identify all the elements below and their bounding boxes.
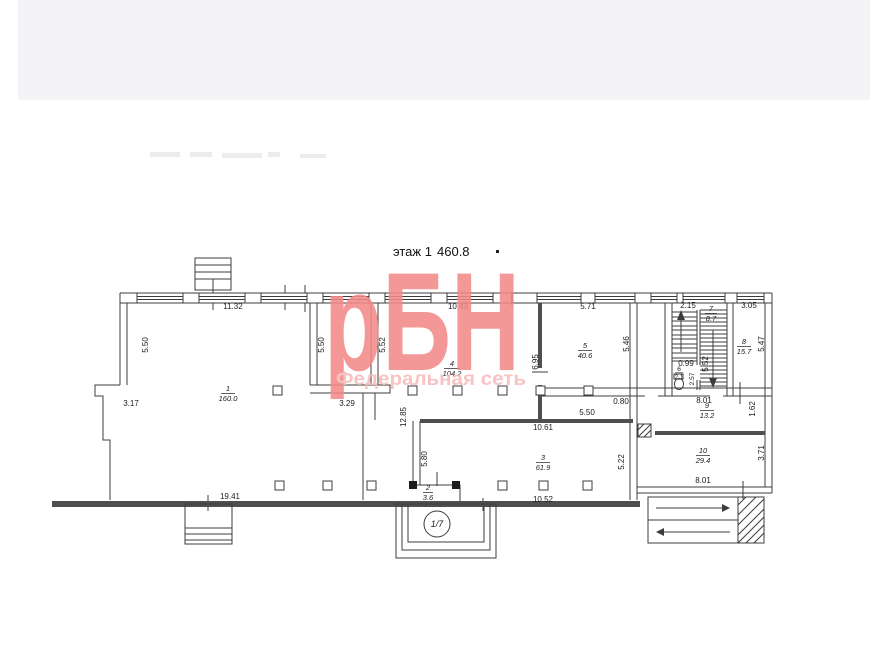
svg-text:29.4: 29.4: [695, 456, 711, 465]
svg-text:1: 1: [226, 384, 230, 393]
floor-plan-page: этаж 1 460.8: [0, 0, 870, 652]
dim-room9-right: 1.62: [748, 401, 757, 417]
top-gray-band: [18, 0, 870, 100]
svg-text:2: 2: [425, 483, 431, 492]
dim-bottom-left: 19.41: [220, 492, 241, 501]
svg-text:3.6: 3.6: [423, 493, 434, 502]
dim-stair-right: 5.52: [701, 356, 710, 372]
dim-room4-right: 6.95: [531, 354, 540, 370]
dim-stair-top: 2.15: [680, 301, 696, 310]
dim-room5-right: 5.46: [622, 336, 631, 352]
dim-corr-width: 5.50: [579, 408, 595, 417]
dim-room8-right: 5.47: [757, 336, 766, 352]
dim-room6-height: 2.57: [689, 372, 696, 385]
svg-text:2.1: 2.1: [674, 374, 683, 381]
floor-plan-svg: этаж 1 460.8: [0, 0, 870, 652]
svg-text:15.7: 15.7: [737, 347, 752, 356]
dim-top-right: 5.71: [580, 302, 596, 311]
dim-room3-bottom: 10.52: [533, 495, 554, 504]
dim-step-left: 3.17: [123, 399, 139, 408]
svg-text:10: 10: [699, 446, 708, 455]
watermark-subtitle: Федеральная сеть: [336, 369, 526, 390]
svg-text:160.0: 160.0: [219, 394, 239, 403]
dim-room3-left: 5.80: [420, 451, 429, 467]
dim-step-mid: 3.29: [339, 399, 355, 408]
dim-corridor: 12.85: [399, 406, 408, 427]
dim-room8-top: 3.05: [741, 301, 757, 310]
svg-text:6: 6: [677, 366, 681, 373]
svg-text:61.9: 61.9: [536, 463, 551, 472]
dim-room10-bottom: 8.01: [695, 476, 711, 485]
dim-room10-right: 3.71: [757, 445, 766, 461]
watermark: рБН Федеральная сеть: [324, 243, 526, 400]
dim-room3-top: 10.61: [533, 423, 554, 432]
svg-text:8.7: 8.7: [706, 314, 717, 323]
dim-corr-small: 0.80: [613, 397, 629, 406]
dim-room3-right: 5.22: [617, 454, 626, 470]
entrance-number: 1/7: [431, 519, 445, 529]
svg-text:40.6: 40.6: [578, 351, 593, 360]
svg-text:13.2: 13.2: [700, 411, 715, 420]
dim-top-left: 11.32: [223, 302, 243, 311]
dim-left-wall: 5.50: [141, 337, 150, 353]
